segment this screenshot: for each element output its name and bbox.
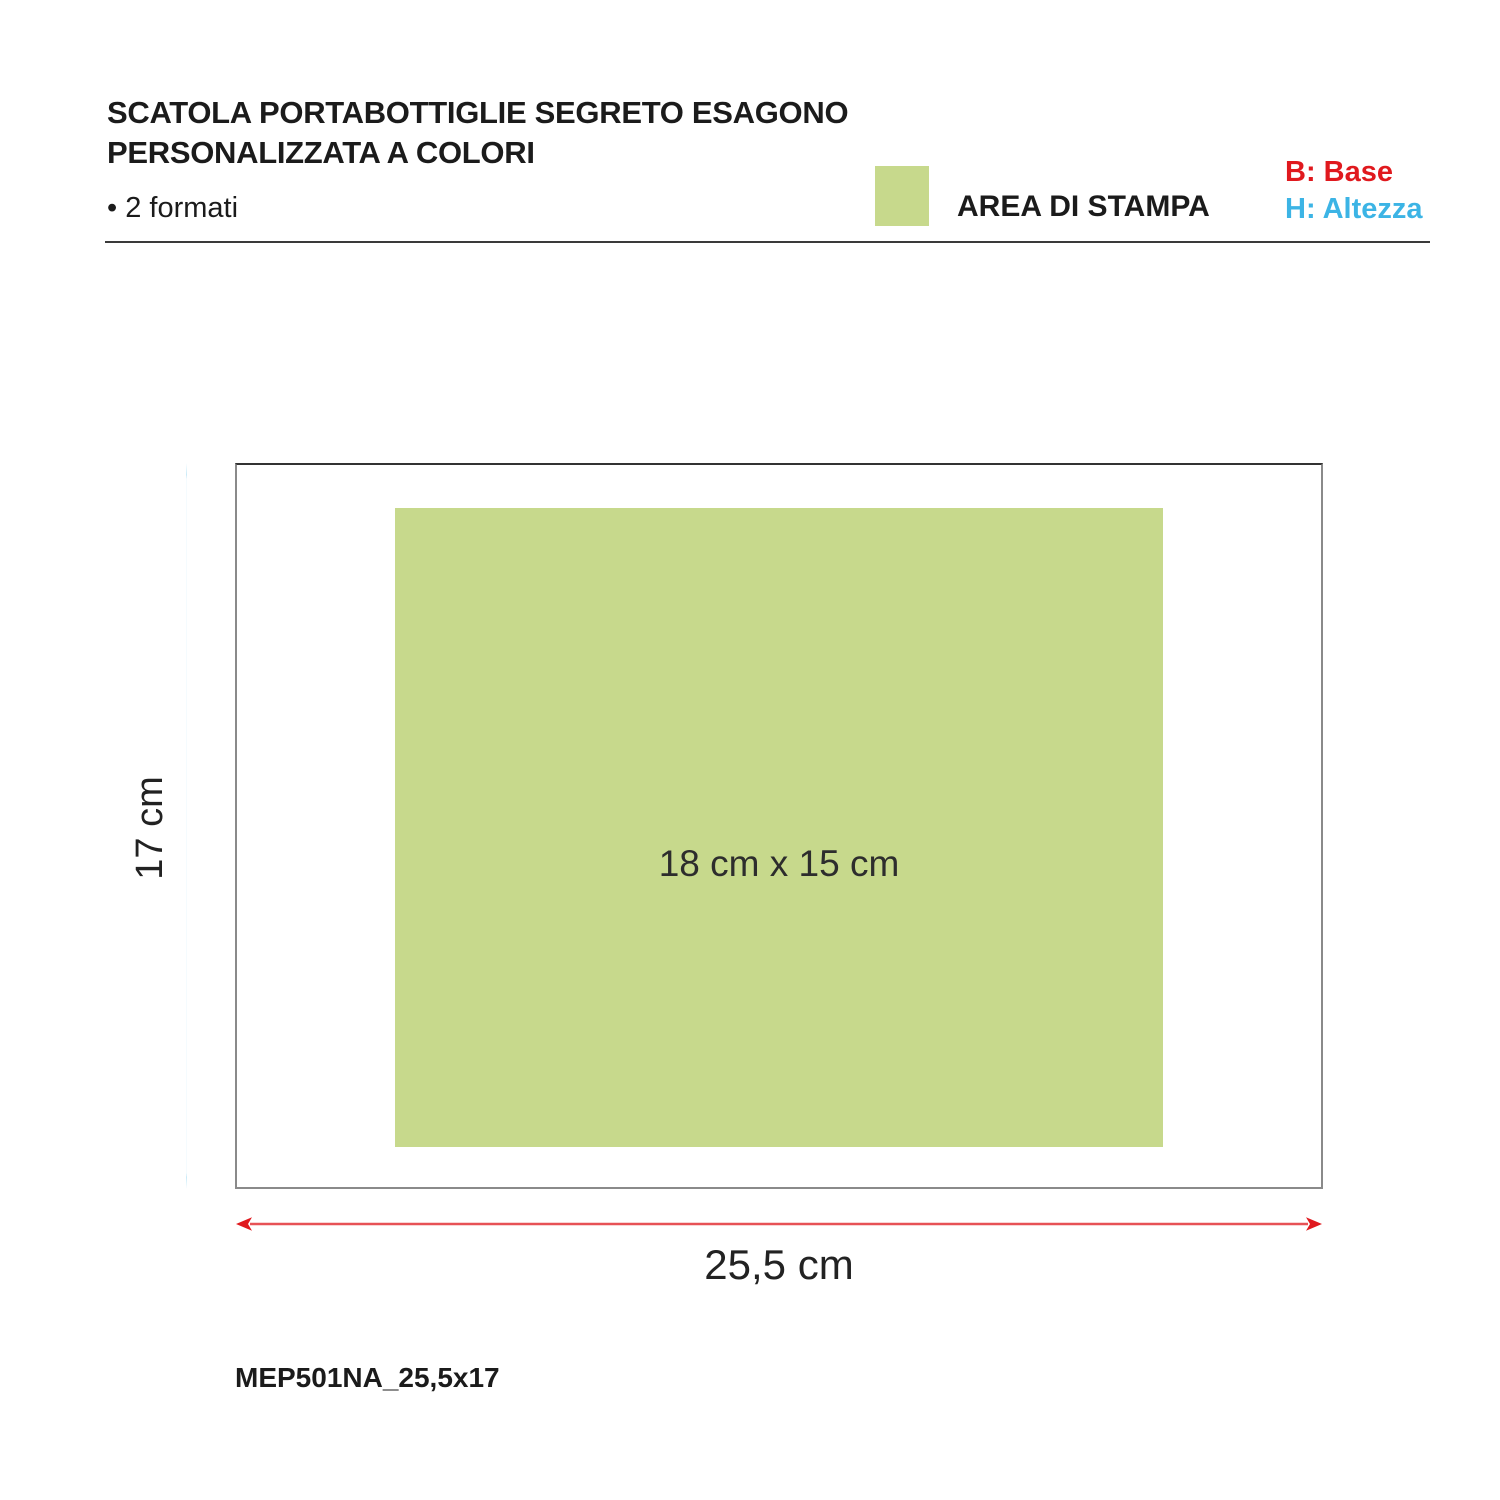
height-dimension-arrow-icon bbox=[186, 463, 206, 1189]
formats-note: • 2 formati bbox=[107, 192, 238, 225]
base-key-label: B: Base bbox=[1285, 154, 1423, 191]
base-dimension-label: 25,5 cm bbox=[235, 1241, 1323, 1289]
print-area-size-label: 18 cm x 15 cm bbox=[395, 843, 1163, 885]
product-print-area-sheet: SCATOLA PORTABOTTIGLIE SEGRETO ESAGONO P… bbox=[0, 0, 1500, 1500]
height-dimension-label: 17 cm bbox=[128, 768, 172, 888]
header-divider bbox=[105, 241, 1430, 243]
page-title-line1: SCATOLA PORTABOTTIGLIE SEGRETO ESAGONO bbox=[107, 93, 848, 133]
height-key-label: H: Altezza bbox=[1285, 191, 1423, 228]
print-area-rect bbox=[395, 508, 1163, 1147]
print-area-legend-label: AREA DI STAMPA bbox=[957, 190, 1210, 224]
dimension-key: B: Base H: Altezza bbox=[1285, 154, 1423, 228]
print-area-swatch bbox=[875, 166, 929, 226]
page-title-line2: PERSONALIZZATA A COLORI bbox=[107, 133, 848, 173]
product-code: MEP501NA_25,5x17 bbox=[235, 1362, 500, 1394]
page-title: SCATOLA PORTABOTTIGLIE SEGRETO ESAGONO P… bbox=[107, 93, 848, 173]
base-dimension-arrow-icon bbox=[236, 1214, 1322, 1234]
